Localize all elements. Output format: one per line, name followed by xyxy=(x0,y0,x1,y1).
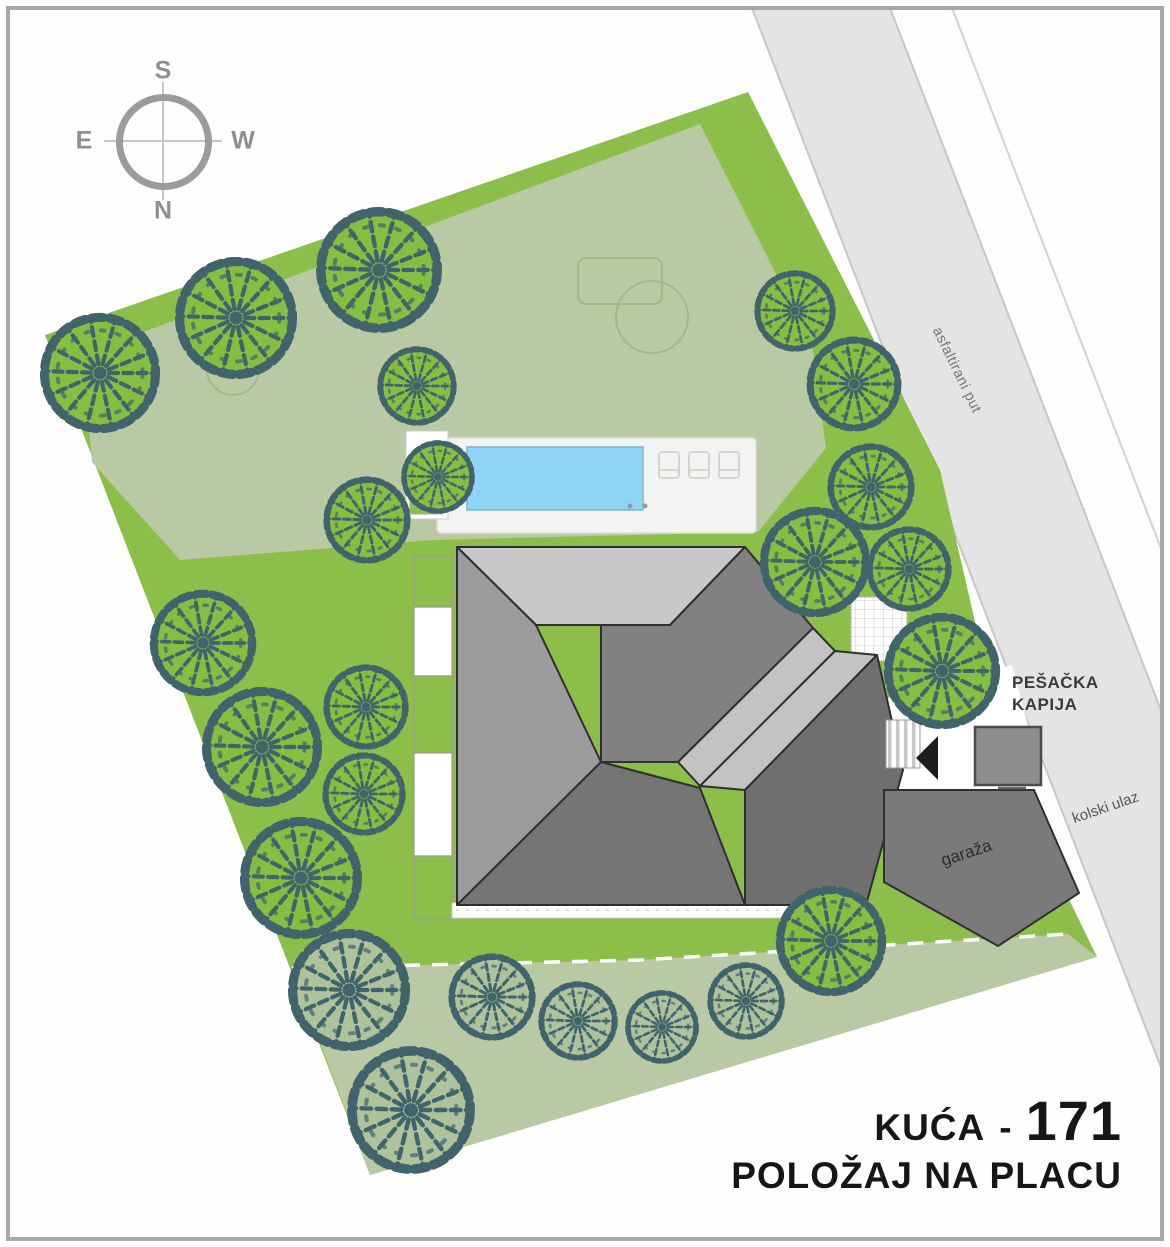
tree xyxy=(203,688,322,807)
site-plan-canvas: asfaltirani put kolski ulaz garaža S N E… xyxy=(0,0,1170,1247)
tree xyxy=(755,271,836,352)
compass-west: W xyxy=(231,127,255,156)
swimming-pool xyxy=(467,447,643,510)
title-block: KUĆA - 171 POLOŽAJ NA PLACU xyxy=(731,1088,1122,1197)
tree xyxy=(324,477,410,563)
tree xyxy=(348,1047,475,1174)
compass-rose: S N E W xyxy=(104,82,222,200)
tree xyxy=(807,337,901,431)
tree xyxy=(323,753,405,835)
pedestrian-gate-label: PEŠAČKA KAPIJA xyxy=(1012,672,1099,716)
compass-east: E xyxy=(76,127,93,156)
gate-steps xyxy=(886,720,920,768)
tree xyxy=(150,590,255,695)
tree xyxy=(378,347,457,426)
tree xyxy=(317,208,442,333)
title-separator: - xyxy=(999,1107,1011,1149)
compass-north: N xyxy=(154,197,172,226)
pool-ladder-dot xyxy=(628,504,633,509)
tree xyxy=(539,982,618,1061)
tree xyxy=(626,991,699,1064)
gate-structure xyxy=(975,727,1041,785)
tree xyxy=(289,930,410,1051)
tree xyxy=(176,258,297,379)
tree xyxy=(402,441,475,514)
tree xyxy=(324,665,408,749)
tree xyxy=(708,963,785,1040)
tree xyxy=(776,886,885,995)
pool-ladder-dot xyxy=(643,504,648,509)
tree xyxy=(867,527,951,611)
tree xyxy=(885,614,1000,729)
tree xyxy=(241,818,362,939)
tree xyxy=(760,507,869,616)
title-subtitle: POLOŽAJ NA PLACU xyxy=(731,1155,1122,1197)
west-walkway xyxy=(414,556,452,918)
tree xyxy=(41,314,160,433)
title-number: 171 xyxy=(1026,1088,1122,1153)
title-line1: KUĆA - 171 xyxy=(731,1088,1122,1153)
compass-south: S xyxy=(155,57,172,86)
tree xyxy=(449,954,535,1040)
pedestrian-gate-label-line1: PEŠAČKA xyxy=(1012,672,1099,694)
pedestrian-gate-label-line2: KAPIJA xyxy=(1012,694,1099,716)
title-house: KUĆA xyxy=(874,1107,985,1149)
compass-ring xyxy=(116,94,212,190)
